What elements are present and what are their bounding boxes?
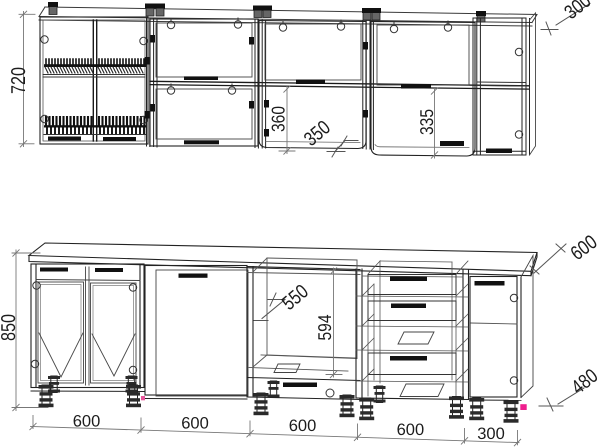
- svg-text:600: 600: [289, 417, 317, 435]
- svg-text:720: 720: [8, 67, 30, 94]
- svg-text:300: 300: [561, 0, 596, 24]
- svg-text:350: 350: [300, 117, 335, 151]
- svg-text:850: 850: [0, 314, 20, 341]
- svg-text:335: 335: [416, 109, 437, 135]
- svg-text:480: 480: [568, 365, 600, 399]
- svg-text:594: 594: [314, 315, 335, 341]
- svg-text:600: 600: [567, 231, 600, 265]
- svg-text:600: 600: [397, 421, 425, 439]
- svg-text:600: 600: [181, 415, 209, 433]
- svg-text:360: 360: [268, 106, 289, 132]
- svg-text:300: 300: [477, 425, 505, 443]
- svg-text:600: 600: [73, 413, 101, 431]
- svg-text:550: 550: [278, 281, 313, 315]
